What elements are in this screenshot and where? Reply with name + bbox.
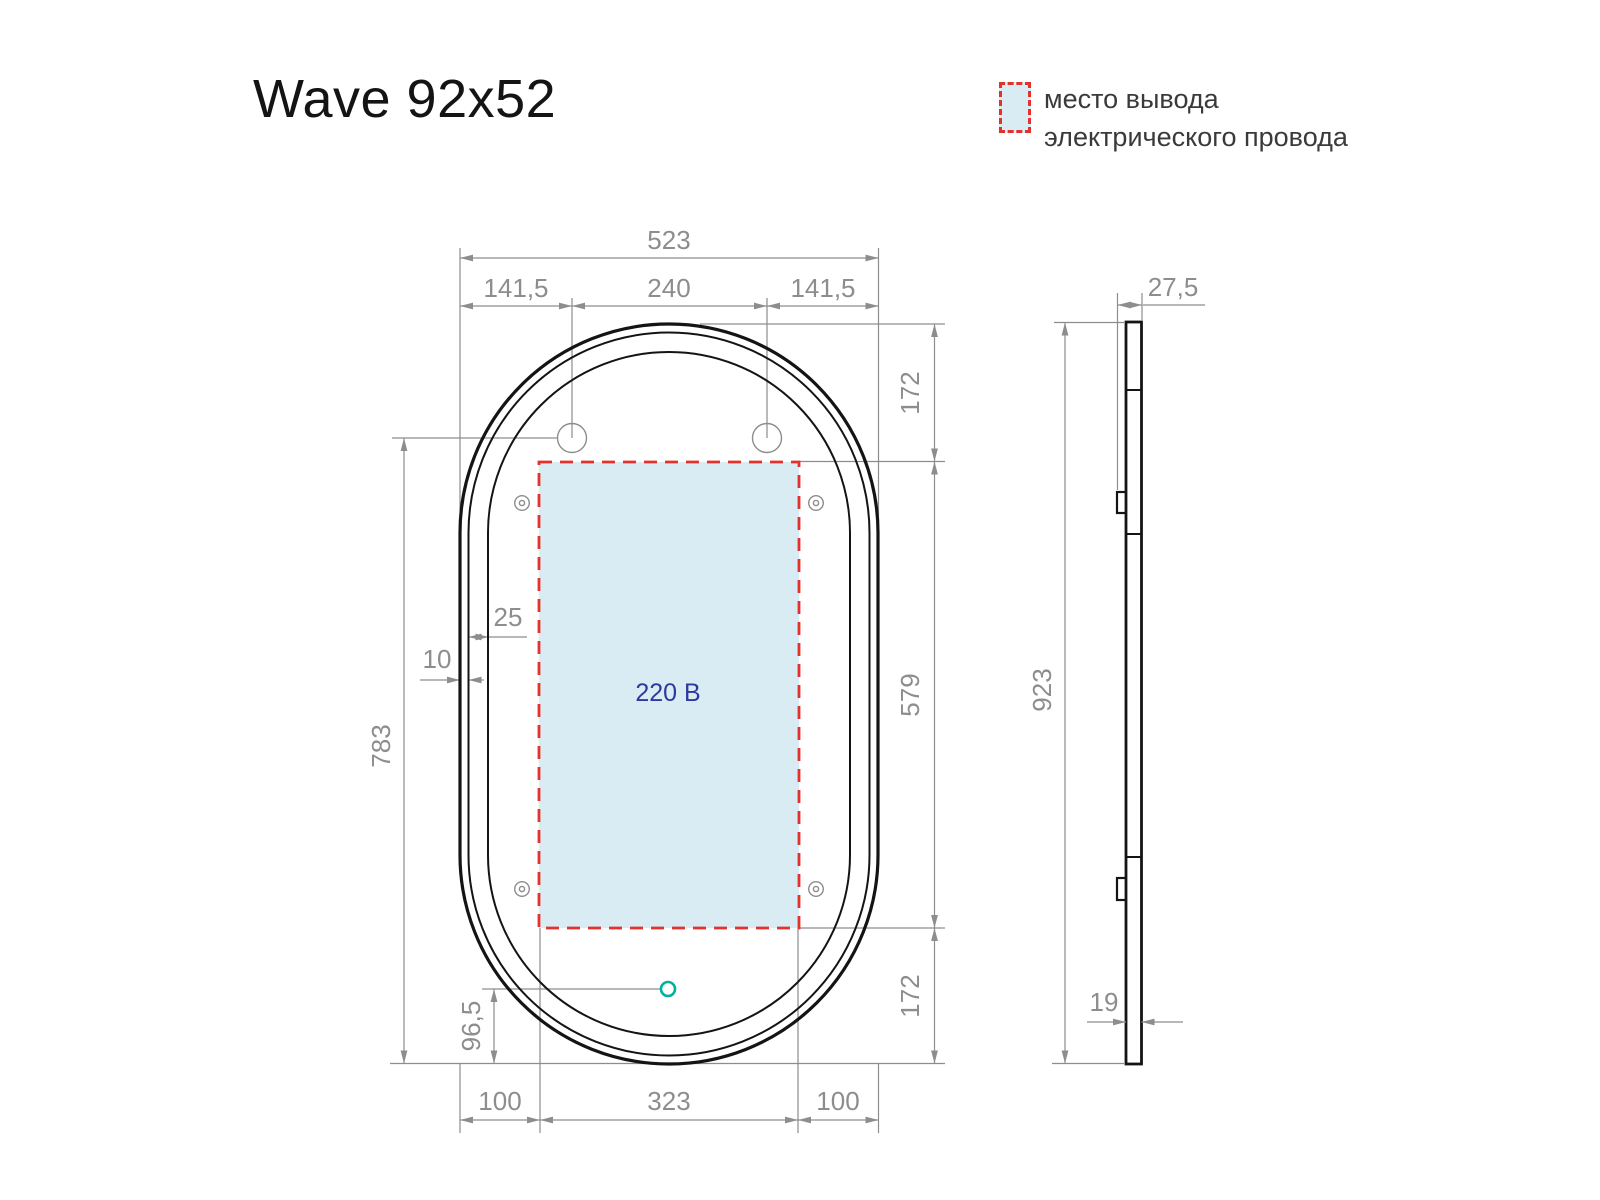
- dim-overall-width: 523: [647, 225, 690, 255]
- fastener-top-left: [515, 496, 530, 511]
- drawing-canvas: 523 141,5 240 141,5 172 579 172 783: [0, 0, 1600, 1200]
- dim-top-to-zone: 172: [895, 371, 925, 414]
- voltage-label: 220 В: [635, 679, 700, 707]
- dim-side-offset-left: 141,5: [483, 273, 548, 303]
- dim-sensor-to-bottom: 96,5: [456, 1001, 486, 1052]
- technical-drawing-page: Wave 92x52 место вывода электрического п…: [0, 0, 1600, 1200]
- dim-hole-spacing: 240: [647, 273, 690, 303]
- dim-zone-right-inset: 100: [816, 1086, 859, 1116]
- fastener-bottom-left: [515, 882, 530, 897]
- touch-sensor: [661, 982, 675, 996]
- dim-side-offset-right: 141,5: [790, 273, 855, 303]
- side-view: [1117, 322, 1142, 1064]
- mirror-profile: [1126, 322, 1142, 1064]
- dim-frame-edge: 10: [423, 644, 452, 674]
- dim-height: 923: [1027, 668, 1057, 711]
- side-view-dimensions: 27,5 923 19: [1027, 272, 1205, 1064]
- dim-zone-left-inset: 100: [478, 1086, 521, 1116]
- front-view: 220 В: [460, 324, 878, 1064]
- dim-zone-height: 579: [895, 673, 925, 716]
- dim-holes-to-bottom: 783: [366, 724, 396, 767]
- dim-zone-width: 323: [647, 1086, 690, 1116]
- dim-led-band: 25: [494, 602, 523, 632]
- dim-zone-to-bottom: 172: [895, 974, 925, 1017]
- fastener-bottom-right: [809, 882, 824, 897]
- fastener-top-right: [809, 496, 824, 511]
- dim-glass-thickness: 19: [1090, 987, 1119, 1017]
- dim-depth: 27,5: [1148, 272, 1199, 302]
